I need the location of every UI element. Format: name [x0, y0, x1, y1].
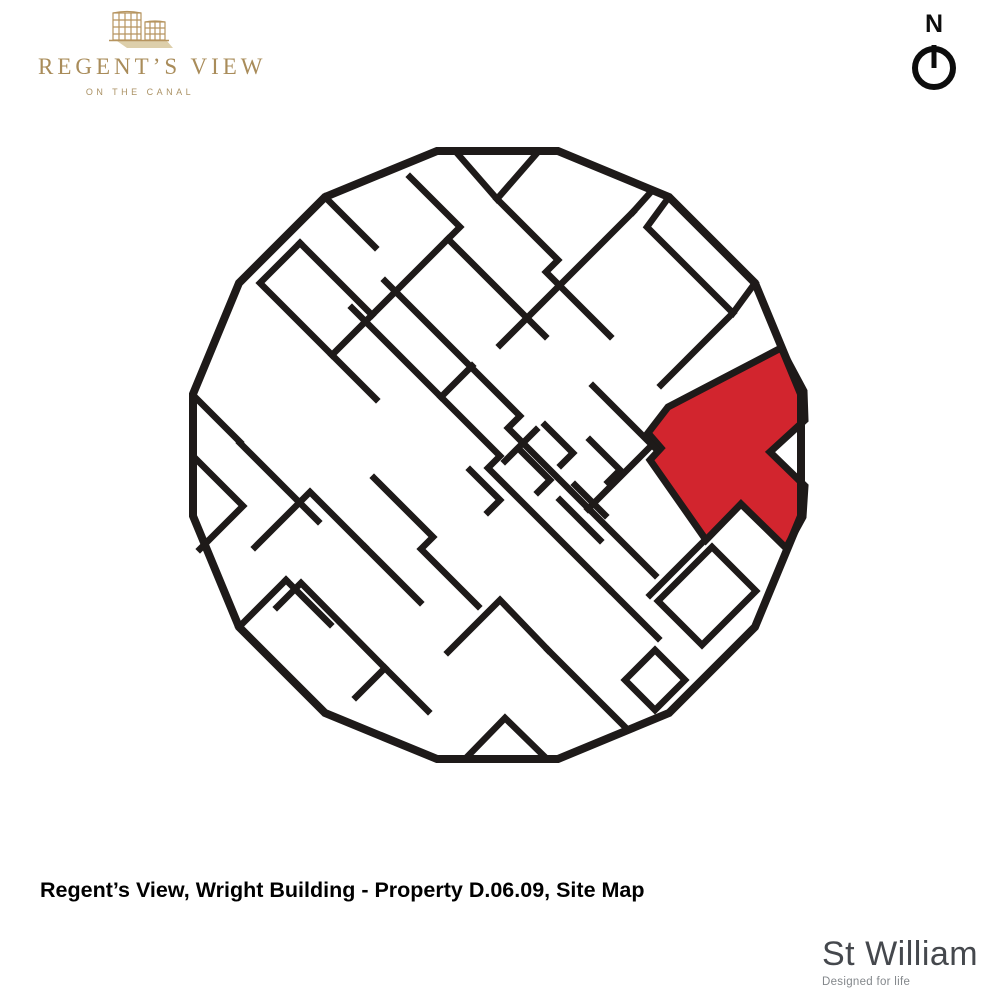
map-caption: Regent’s View, Wright Building - Propert…: [40, 878, 645, 903]
brand-tagline: Designed for life: [822, 976, 982, 988]
interior-wall: [240, 443, 318, 521]
interior-wall: [300, 243, 372, 315]
interior-wall: [593, 386, 656, 449]
interior-wall: [255, 492, 365, 547]
interior-wall: [658, 547, 756, 645]
interior-wall: [365, 547, 420, 602]
interior-wall: [500, 212, 633, 345]
interior-wall: [545, 425, 573, 465]
interior-wall: [332, 355, 376, 399]
interior-wall: [497, 199, 610, 336]
interior-wall: [590, 440, 620, 482]
interior-wall: [633, 193, 650, 212]
interior-wall: [374, 478, 478, 606]
brand-logo: St William Designed for life: [822, 936, 982, 988]
interior-wall: [466, 718, 546, 758]
interior-wall: [441, 366, 472, 397]
interior-wall: [385, 668, 428, 711]
brand-name: St William: [822, 936, 982, 973]
interior-wall: [661, 313, 733, 385]
interior-wall: [505, 430, 536, 461]
interior-wall: [325, 197, 375, 247]
interior-wall: [456, 152, 538, 199]
interior-wall: [588, 449, 648, 509]
interior-wall: [548, 650, 625, 727]
interior-wall: [647, 197, 755, 313]
site-map: [0, 0, 1000, 1000]
interior-wall: [448, 600, 548, 652]
interior-wall: [196, 398, 240, 442]
